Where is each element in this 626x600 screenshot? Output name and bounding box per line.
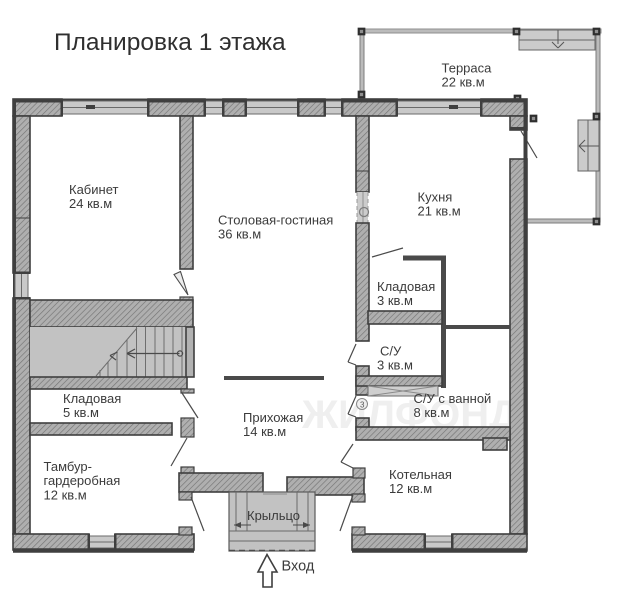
svg-text:Котельная: Котельная: [389, 467, 452, 482]
svg-text:гардеробная: гардеробная: [44, 473, 121, 488]
svg-text:Планировка 1 этажа: Планировка 1 этажа: [54, 29, 286, 56]
svg-text:Кладовая: Кладовая: [63, 391, 121, 406]
svg-text:Тамбур-: Тамбур-: [44, 459, 92, 474]
svg-text:Столовая-гостиная: Столовая-гостиная: [218, 213, 333, 228]
svg-text:3: 3: [360, 401, 365, 410]
svg-text:С/У: С/У: [380, 344, 402, 359]
svg-text:21 кв.м: 21 кв.м: [418, 204, 461, 219]
svg-text:С/У с ванной: С/У с ванной: [414, 391, 492, 406]
svg-text:Вход: Вход: [282, 559, 315, 575]
svg-text:3 кв.м: 3 кв.м: [377, 358, 413, 373]
svg-text:5 кв.м: 5 кв.м: [63, 405, 99, 420]
svg-text:Кабинет: Кабинет: [69, 182, 118, 197]
svg-text:12 кв.м: 12 кв.м: [44, 488, 87, 503]
svg-text:36 кв.м: 36 кв.м: [218, 227, 261, 242]
svg-text:8 кв.м: 8 кв.м: [414, 405, 450, 420]
svg-text:Прихожая: Прихожая: [243, 410, 303, 425]
svg-text:14 кв.м: 14 кв.м: [243, 424, 286, 439]
svg-text:24 кв.м: 24 кв.м: [69, 196, 112, 211]
svg-text:Крыльцо: Крыльцо: [247, 508, 300, 523]
svg-text:12 кв.м: 12 кв.м: [389, 481, 432, 496]
svg-text:3 кв.м: 3 кв.м: [377, 293, 413, 308]
svg-text:Терраса: Терраса: [442, 61, 493, 76]
svg-text:Кладовая: Кладовая: [377, 279, 435, 294]
svg-text:22 кв.м: 22 кв.м: [442, 75, 485, 90]
svg-text:Кухня: Кухня: [418, 190, 453, 205]
